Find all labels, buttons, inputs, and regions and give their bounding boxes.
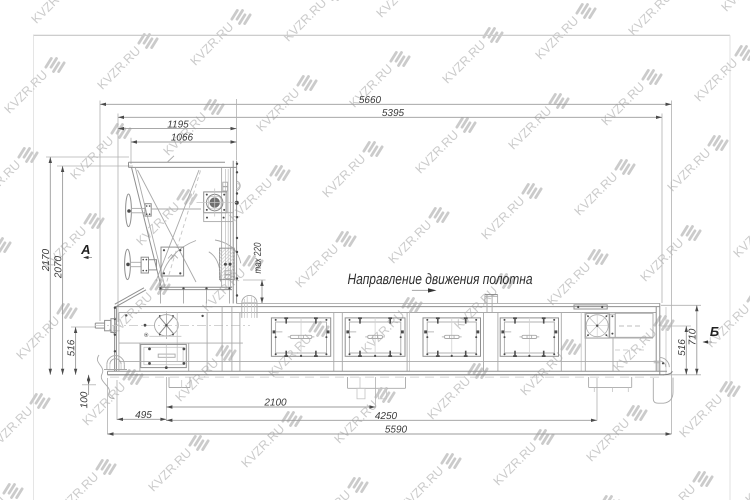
svg-text:А: А <box>80 242 90 257</box>
svg-text:KVZR.RU: KVZR.RU <box>227 176 276 225</box>
svg-text:KVZR.RU: KVZR.RU <box>95 44 144 93</box>
svg-text:KVZR.RU: KVZR.RU <box>146 446 195 495</box>
svg-text:KVZR.RU: KVZR.RU <box>320 152 369 201</box>
svg-text:KVZR.RU: KVZR.RU <box>29 0 78 26</box>
svg-text:KVZR.RU: KVZR.RU <box>0 158 23 207</box>
svg-text:Направление движения полотна: Направление движения полотна <box>348 271 533 288</box>
svg-text:KVZR.RU: KVZR.RU <box>332 398 381 447</box>
svg-text:KVZR.RU: KVZR.RU <box>14 314 63 363</box>
svg-text:2170: 2170 <box>41 248 52 272</box>
svg-text:KVZR.RU: KVZR.RU <box>0 404 35 453</box>
svg-text:KVZR.RU: KVZR.RU <box>239 422 288 471</box>
svg-text:KVZR.RU: KVZR.RU <box>107 290 156 339</box>
svg-text:KVZR.RU: KVZR.RU <box>479 194 528 243</box>
svg-text:100: 100 <box>79 391 90 408</box>
svg-text:KVZR.RU: KVZR.RU <box>374 0 423 20</box>
svg-text:KVZR.RU: KVZR.RU <box>122 0 171 2</box>
svg-text:max 220: max 220 <box>253 242 264 273</box>
svg-text:KVZR.RU: KVZR.RU <box>626 0 675 38</box>
svg-text:KVZR.RU: KVZR.RU <box>53 470 102 500</box>
svg-text:KVZR.RU: KVZR.RU <box>293 242 342 291</box>
svg-text:KVZR.RU: KVZR.RU <box>173 356 222 405</box>
svg-text:4250: 4250 <box>375 411 398 422</box>
svg-text:KVZR.RU: KVZR.RU <box>413 128 462 177</box>
svg-text:710: 710 <box>687 328 698 345</box>
svg-text:5590: 5590 <box>385 425 408 436</box>
svg-text:5660: 5660 <box>359 95 382 106</box>
svg-text:KVZR.RU: KVZR.RU <box>692 56 741 105</box>
svg-text:1195: 1195 <box>167 119 189 130</box>
svg-text:KVZR.RU: KVZR.RU <box>545 260 594 309</box>
svg-text:2070: 2070 <box>53 255 64 279</box>
svg-text:KVZR.RU: KVZR.RU <box>281 0 330 44</box>
svg-text:KVZR.RU: KVZR.RU <box>440 38 489 87</box>
svg-text:KVZR.RU: KVZR.RU <box>398 464 447 500</box>
svg-text:1066: 1066 <box>171 133 194 144</box>
svg-text:KVZR.RU: KVZR.RU <box>665 146 714 195</box>
svg-text:KVZR.RU: KVZR.RU <box>254 86 303 135</box>
svg-text:KVZR.RU: KVZR.RU <box>305 488 354 500</box>
svg-text:KVZR.RU: KVZR.RU <box>533 14 582 63</box>
svg-text:KVZR.RU: KVZR.RU <box>491 440 540 489</box>
svg-text:KVZR.RU: KVZR.RU <box>743 458 750 500</box>
svg-text:KVZR.RU: KVZR.RU <box>719 0 750 14</box>
svg-text:KVZR.RU: KVZR.RU <box>731 212 750 261</box>
svg-text:Б: Б <box>710 324 719 339</box>
svg-text:KVZR.RU: KVZR.RU <box>425 374 474 423</box>
svg-text:KVZR.RU: KVZR.RU <box>359 308 408 357</box>
svg-text:495: 495 <box>135 410 152 421</box>
svg-text:KVZR.RU: KVZR.RU <box>0 494 8 500</box>
svg-text:KVZR.RU: KVZR.RU <box>572 170 621 219</box>
svg-text:516: 516 <box>677 339 688 356</box>
svg-text:KVZR.RU: KVZR.RU <box>677 392 726 441</box>
svg-text:KVZR.RU: KVZR.RU <box>584 416 633 465</box>
svg-text:KVZR.RU: KVZR.RU <box>68 134 117 183</box>
svg-text:2100: 2100 <box>263 398 287 409</box>
svg-text:KVZR.RU: KVZR.RU <box>2 68 51 117</box>
svg-text:KVZR.RU: KVZR.RU <box>188 20 237 69</box>
svg-text:KVZR.RU: KVZR.RU <box>650 482 699 500</box>
svg-text:KVZR.RU: KVZR.RU <box>506 104 555 153</box>
svg-text:516: 516 <box>66 339 77 356</box>
svg-text:KVZR.RU: KVZR.RU <box>386 218 435 267</box>
svg-text:5395: 5395 <box>382 108 405 119</box>
